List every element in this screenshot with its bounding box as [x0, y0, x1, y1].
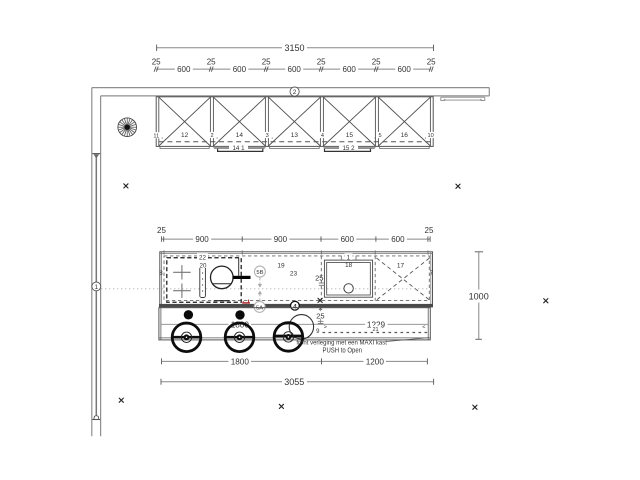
svg-text:25: 25 [207, 58, 216, 67]
svg-text:12: 12 [181, 132, 189, 139]
svg-text:25: 25 [315, 273, 323, 282]
svg-text:600: 600 [343, 65, 357, 74]
svg-text:600: 600 [341, 235, 355, 244]
svg-text:14: 14 [236, 132, 244, 139]
svg-text:15: 15 [346, 132, 354, 139]
svg-text:25: 25 [316, 311, 324, 320]
svg-text:17: 17 [397, 262, 405, 269]
svg-text:25: 25 [425, 226, 434, 235]
svg-text:25: 25 [372, 58, 381, 67]
svg-text:25: 25 [157, 226, 166, 235]
svg-text:3: 3 [266, 133, 269, 139]
svg-text:18: 18 [345, 262, 352, 269]
svg-text:900: 900 [195, 235, 209, 244]
svg-text:5A: 5A [256, 305, 263, 311]
svg-text:4: 4 [321, 133, 324, 139]
svg-text:25: 25 [427, 58, 436, 67]
svg-text:1: 1 [94, 284, 98, 291]
svg-text:1200: 1200 [366, 357, 385, 366]
svg-text:front verleging met een MAXI k: front verleging met een MAXI kast [296, 339, 387, 346]
svg-text:25: 25 [152, 58, 161, 67]
svg-text:1000: 1000 [469, 291, 489, 301]
svg-text:600: 600 [177, 65, 191, 74]
svg-text:600: 600 [288, 65, 302, 74]
svg-text:23: 23 [290, 271, 298, 278]
svg-text:>: > [324, 325, 327, 331]
svg-text:10: 10 [427, 133, 433, 139]
svg-text:8: 8 [159, 270, 163, 277]
svg-text:1800: 1800 [231, 357, 250, 366]
svg-text:25: 25 [262, 58, 271, 67]
svg-text:11: 11 [153, 134, 159, 140]
svg-text:21: 21 [372, 327, 378, 333]
svg-text:7: 7 [430, 270, 434, 277]
svg-text:5: 5 [378, 133, 381, 139]
svg-text:20: 20 [200, 263, 207, 270]
svg-text:900: 900 [274, 235, 288, 244]
svg-text:4: 4 [293, 303, 297, 310]
svg-text:5B: 5B [256, 270, 263, 276]
svg-text:13: 13 [291, 132, 299, 139]
svg-text:<: < [422, 325, 425, 331]
svg-text:25: 25 [317, 58, 326, 67]
svg-text:600: 600 [398, 65, 412, 74]
svg-text:16: 16 [401, 132, 409, 139]
svg-text:1: 1 [347, 255, 351, 262]
svg-text:3055: 3055 [284, 377, 304, 387]
svg-text:2: 2 [293, 89, 297, 96]
svg-text:19: 19 [277, 262, 285, 269]
svg-text:600: 600 [233, 65, 247, 74]
svg-text:2: 2 [210, 133, 213, 139]
svg-text:3150: 3150 [284, 43, 304, 53]
svg-text:PUSH to Open: PUSH to Open [323, 348, 363, 355]
svg-text:22: 22 [199, 254, 206, 261]
svg-text:600: 600 [391, 235, 405, 244]
